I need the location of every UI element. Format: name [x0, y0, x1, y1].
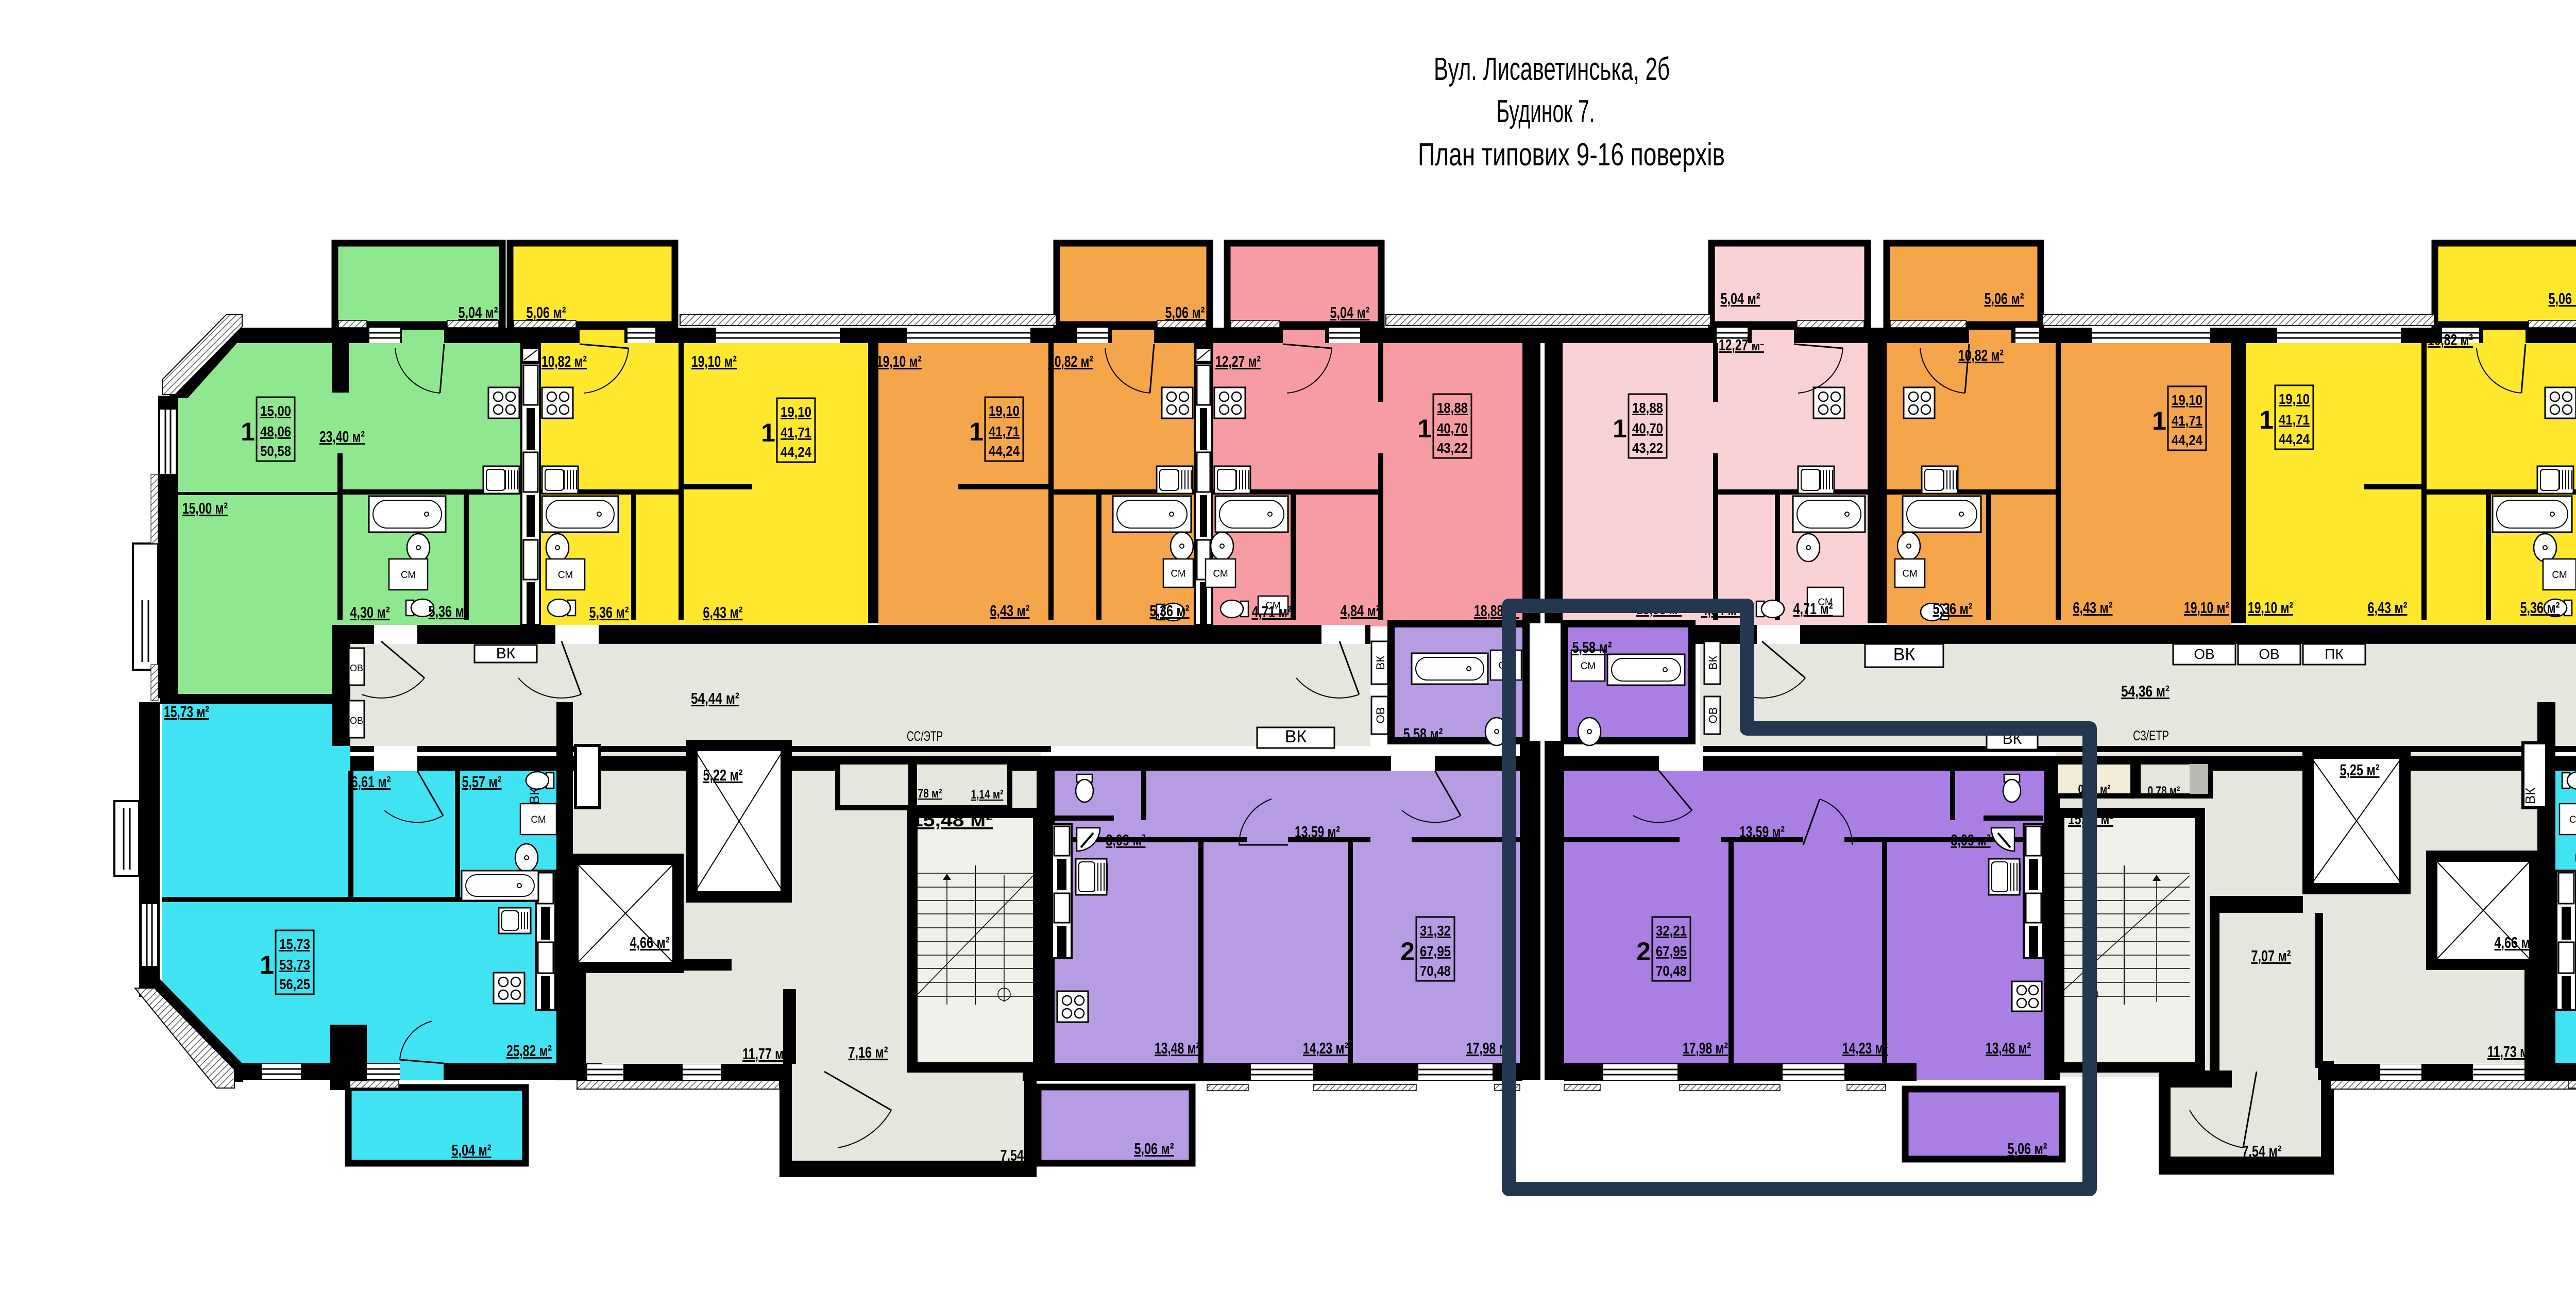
svg-text:13,59 м²: 13,59 м²: [1295, 823, 1340, 841]
svg-text:ОВ: ОВ: [1374, 707, 1387, 724]
svg-text:5,36 м²: 5,36 м²: [2520, 599, 2560, 617]
svg-text:5,58 м²: 5,58 м²: [1403, 725, 1443, 743]
svg-text:5,06 м²: 5,06 м²: [1985, 290, 2024, 308]
svg-text:5,04 м²: 5,04 м²: [459, 303, 498, 321]
svg-text:43,22: 43,22: [1437, 440, 1468, 456]
svg-text:1: 1: [1613, 414, 1627, 443]
svg-text:ВК: ВК: [496, 645, 516, 662]
svg-text:25,82 м²: 25,82 м²: [506, 1042, 552, 1060]
svg-text:48,06: 48,06: [260, 423, 291, 439]
svg-text:11,73 м²: 11,73 м²: [2487, 1043, 2533, 1061]
svg-text:ВК: ВК: [1285, 727, 1307, 746]
svg-text:ОВ: ОВ: [1707, 707, 1720, 724]
svg-text:44,24: 44,24: [989, 443, 1020, 459]
svg-text:19,10: 19,10: [781, 404, 811, 420]
svg-text:10,82 м²: 10,82 м²: [2428, 331, 2473, 349]
svg-text:5,06 м²: 5,06 м²: [1165, 303, 1205, 321]
svg-text:6,43 м²: 6,43 м²: [703, 603, 743, 621]
svg-text:14,23 м²: 14,23 м²: [1842, 1039, 1888, 1057]
svg-text:6,61 м²: 6,61 м²: [351, 773, 391, 791]
svg-text:СМ: СМ: [1581, 661, 1596, 672]
svg-text:41,71: 41,71: [781, 424, 811, 440]
svg-text:3,09 м²: 3,09 м²: [1106, 831, 1146, 849]
svg-text:5,06 м²: 5,06 м²: [2549, 290, 2576, 308]
svg-text:70,48: 70,48: [1420, 963, 1451, 979]
svg-text:ВК: ВК: [527, 788, 542, 805]
svg-text:31,32: 31,32: [1420, 923, 1451, 939]
svg-text:1: 1: [2152, 406, 2166, 435]
svg-text:44,24: 44,24: [781, 444, 811, 460]
svg-text:СМ: СМ: [1171, 569, 1185, 580]
svg-text:Вул. Лисаветинська, 2б: Вул. Лисаветинська, 2б: [1434, 52, 1670, 87]
svg-text:15,48 м²: 15,48 м²: [911, 809, 993, 830]
svg-text:50,58: 50,58: [260, 443, 291, 459]
svg-text:70,48: 70,48: [1656, 963, 1687, 979]
svg-text:5,04 м²: 5,04 м²: [452, 1141, 492, 1159]
svg-text:СМ: СМ: [2569, 814, 2576, 825]
svg-text:5,36 м²: 5,36 м²: [589, 603, 629, 621]
svg-text:15,00 м²: 15,00 м²: [182, 499, 228, 517]
svg-text:СМ: СМ: [1902, 569, 1917, 580]
svg-text:5,06 м²: 5,06 м²: [2008, 1140, 2047, 1158]
svg-text:ОВ: ОВ: [2259, 646, 2279, 662]
svg-text:1: 1: [2259, 405, 2274, 434]
svg-text:7,54 м²: 7,54 м²: [2242, 1142, 2282, 1160]
svg-text:СМ: СМ: [1213, 569, 1228, 580]
svg-text:15,73 м²: 15,73 м²: [164, 703, 209, 721]
svg-text:19,10 м²: 19,10 м²: [691, 352, 737, 370]
svg-text:15,00: 15,00: [260, 403, 291, 419]
svg-text:5,06 м²: 5,06 м²: [527, 303, 566, 321]
svg-text:67,95: 67,95: [1656, 943, 1687, 959]
svg-text:5,36 м²: 5,36 м²: [429, 602, 468, 620]
svg-text:19,10 м²: 19,10 м²: [2184, 599, 2229, 617]
svg-text:1: 1: [761, 418, 775, 447]
svg-text:5,36 м²: 5,36 м²: [1933, 600, 1973, 618]
svg-text:ВК: ВК: [1707, 656, 1720, 670]
svg-text:10,82 м²: 10,82 м²: [1048, 352, 1093, 370]
svg-text:СМ: СМ: [531, 814, 546, 825]
svg-text:6,43 м²: 6,43 м²: [2368, 599, 2408, 617]
svg-text:41,71: 41,71: [2279, 412, 2310, 428]
svg-text:ВК: ВК: [1893, 645, 1916, 665]
svg-text:54,36 м²: 54,36 м²: [2121, 682, 2170, 700]
svg-text:СМ: СМ: [558, 570, 573, 581]
svg-text:6,43 м²: 6,43 м²: [990, 602, 1030, 620]
svg-text:56,25: 56,25: [279, 976, 310, 992]
svg-text:7,07 м²: 7,07 м²: [2251, 947, 2291, 965]
svg-text:7,16 м²: 7,16 м²: [849, 1043, 888, 1061]
svg-text:32,21: 32,21: [1656, 923, 1687, 939]
svg-text:53,73: 53,73: [279, 957, 310, 973]
svg-text:5,36 м²: 5,36 м²: [1150, 602, 1190, 620]
svg-text:41,71: 41,71: [989, 423, 1020, 439]
svg-text:13,48 м²: 13,48 м²: [1155, 1039, 1200, 1057]
svg-text:5,22 м²: 5,22 м²: [703, 766, 743, 784]
svg-text:ОВ: ОВ: [350, 716, 363, 726]
svg-text:С3/ЕТР: С3/ЕТР: [2133, 728, 2169, 743]
svg-text:67,95: 67,95: [1420, 943, 1451, 959]
svg-text:4,71 м²: 4,71 м²: [1252, 603, 1292, 621]
svg-text:План типових 9-16 поверхів: План типових 9-16 поверхів: [1418, 137, 1725, 173]
svg-text:14,23 м²: 14,23 м²: [1303, 1039, 1348, 1057]
svg-text:2: 2: [1636, 937, 1651, 966]
svg-text:СМ: СМ: [2552, 570, 2567, 581]
svg-text:СС/ЭТР: СС/ЭТР: [907, 728, 943, 744]
svg-text:2: 2: [1400, 937, 1415, 966]
svg-text:ВК: ВК: [2522, 788, 2538, 805]
svg-text:5,25 м²: 5,25 м²: [2340, 761, 2380, 779]
svg-text:44,24: 44,24: [2279, 431, 2310, 447]
svg-text:23,40 м²: 23,40 м²: [319, 428, 365, 446]
svg-text:1: 1: [969, 417, 984, 446]
svg-text:4,30 м²: 4,30 м²: [350, 603, 390, 621]
svg-text:11,77 м²: 11,77 м²: [742, 1045, 788, 1063]
svg-text:4,66 м²: 4,66 м²: [2495, 933, 2534, 952]
svg-text:ОВ: ОВ: [350, 663, 363, 673]
svg-text:54,44 м²: 54,44 м²: [691, 689, 739, 707]
svg-text:12,27 м²: 12,27 м²: [1215, 352, 1261, 370]
svg-text:5,06 м²: 5,06 м²: [1134, 1140, 1174, 1158]
svg-text:ВК: ВК: [1374, 656, 1387, 670]
svg-text:19,10: 19,10: [2279, 391, 2310, 407]
svg-text:19,10 м²: 19,10 м²: [876, 352, 922, 370]
svg-text:18,88: 18,88: [1632, 400, 1663, 416]
svg-text:6,43 м²: 6,43 м²: [2073, 599, 2113, 617]
svg-text:40,70: 40,70: [1632, 420, 1663, 436]
svg-text:3,09 м²: 3,09 м²: [1951, 831, 1991, 849]
svg-text:СМ: СМ: [401, 570, 416, 581]
svg-text:5,58 м²: 5,58 м²: [1572, 638, 1612, 656]
svg-text:19,10: 19,10: [989, 403, 1020, 419]
svg-text:15,73: 15,73: [279, 936, 310, 952]
svg-text:ПК: ПК: [2325, 646, 2344, 662]
svg-text:4,71 м²: 4,71 м²: [1793, 600, 1833, 618]
svg-text:10,82 м²: 10,82 м²: [1958, 346, 2004, 364]
svg-text:41,71: 41,71: [2172, 413, 2202, 429]
svg-text:10,82 м²: 10,82 м²: [541, 352, 587, 370]
svg-text:40,70: 40,70: [1437, 420, 1468, 436]
svg-text:4,66 м²: 4,66 м²: [630, 933, 670, 952]
svg-text:44,24: 44,24: [2172, 432, 2202, 448]
svg-text:5,57 м²: 5,57 м²: [462, 773, 502, 791]
svg-text:7,54 м²: 7,54 м²: [1001, 1146, 1040, 1164]
svg-text:19,10 м²: 19,10 м²: [2248, 599, 2293, 617]
svg-text:5,04 м²: 5,04 м²: [1330, 303, 1370, 321]
svg-text:43,22: 43,22: [1632, 440, 1663, 456]
svg-text:13,59 м²: 13,59 м²: [1739, 823, 1785, 841]
svg-text:Будинок 7.: Будинок 7.: [1497, 94, 1595, 129]
svg-text:17,98 м²: 17,98 м²: [1683, 1039, 1728, 1057]
svg-text:13,48 м²: 13,48 м²: [1986, 1039, 2031, 1057]
svg-text:4,84 м²: 4,84 м²: [1341, 602, 1380, 620]
svg-text:1: 1: [241, 417, 255, 446]
svg-text:1,14 м²: 1,14 м²: [971, 788, 1004, 802]
svg-text:1: 1: [1417, 414, 1432, 443]
svg-text:1: 1: [260, 950, 274, 979]
svg-text:ОВ: ОВ: [2194, 646, 2214, 662]
svg-text:18,88: 18,88: [1437, 400, 1468, 416]
svg-text:19,10: 19,10: [2172, 392, 2202, 408]
svg-text:0,78 м²: 0,78 м²: [2148, 784, 2180, 798]
svg-text:0,78 м²: 0,78 м²: [910, 787, 942, 801]
svg-text:5,04 м²: 5,04 м²: [1721, 290, 1760, 308]
